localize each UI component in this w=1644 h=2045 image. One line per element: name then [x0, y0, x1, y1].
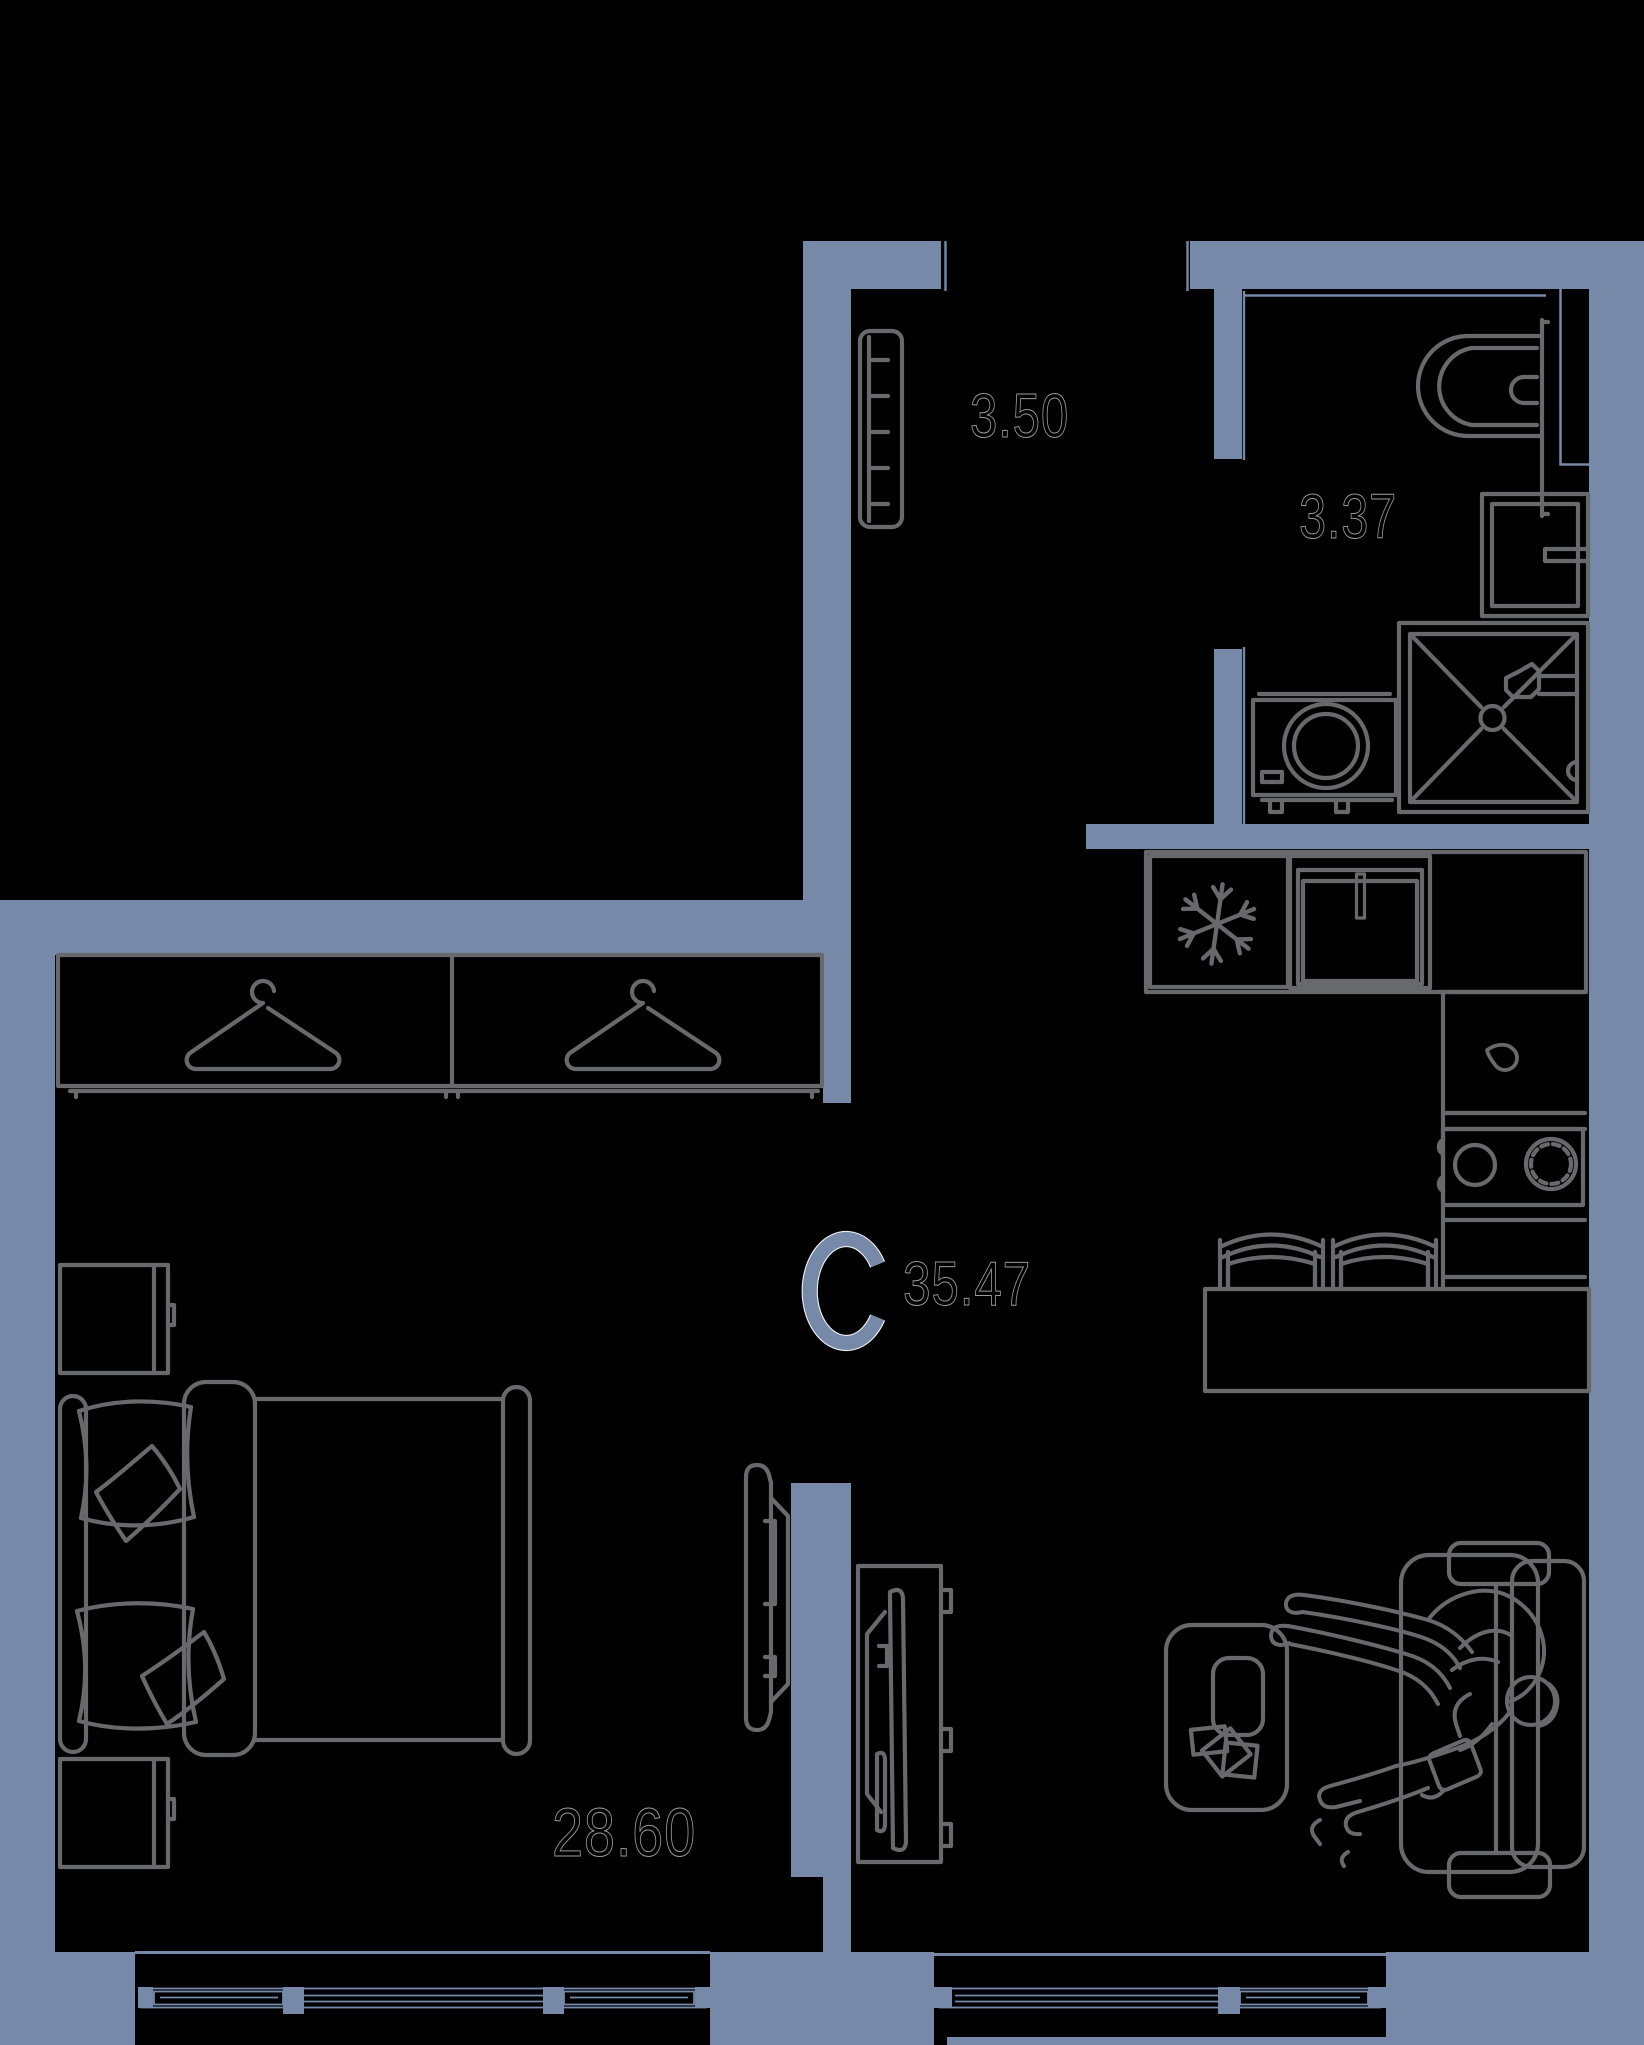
svg-text:3.37: 3.37 — [1299, 482, 1397, 552]
svg-text:35.47: 35.47 — [903, 1250, 1031, 1319]
svg-text:28.60: 28.60 — [552, 1794, 696, 1871]
svg-text:3.50: 3.50 — [970, 382, 1069, 451]
